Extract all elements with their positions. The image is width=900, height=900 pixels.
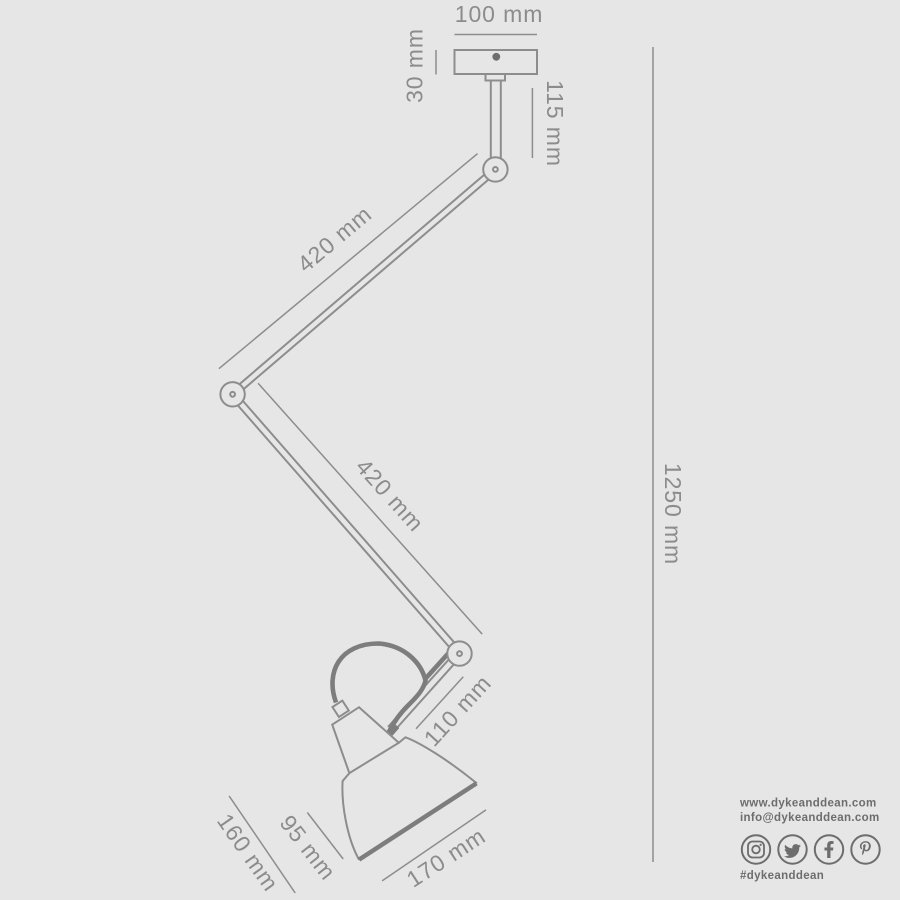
svg-text:#dykeanddean: #dykeanddean	[740, 870, 824, 882]
svg-text:100 mm: 100 mm	[455, 1, 543, 27]
svg-text:1250 mm: 1250 mm	[660, 463, 686, 565]
svg-text:www.dykeanddean.com: www.dykeanddean.com	[739, 798, 877, 810]
svg-text:115 mm: 115 mm	[542, 80, 568, 167]
svg-text:30 mm: 30 mm	[402, 28, 428, 103]
svg-text:info@dykeanddean.com: info@dykeanddean.com	[740, 812, 880, 824]
